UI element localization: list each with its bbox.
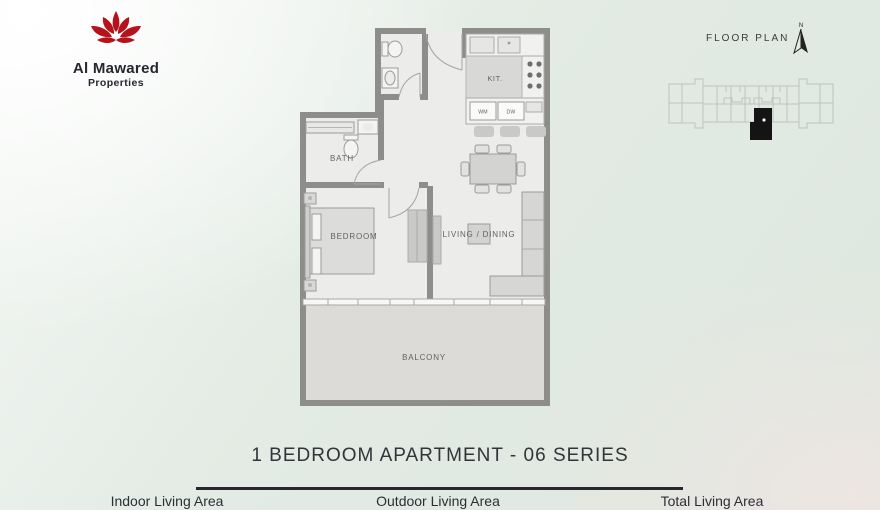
north-letter: N: [799, 23, 803, 29]
tv-console: [433, 216, 441, 264]
plan-title: 1 BEDROOM APARTMENT - 06 SERIES: [0, 445, 880, 467]
north-arrow-icon: N: [789, 20, 813, 61]
bedroom-label: BEDROOM: [331, 232, 378, 241]
kitchen-label: KIT.: [487, 74, 502, 83]
washing-machine-label: WM: [478, 110, 488, 116]
page: { "brand": { "name": "Al Mawared", "tagl…: [0, 0, 880, 510]
brand-tagline: Properties: [52, 77, 180, 89]
indoor-area-label: Indoor Living Area: [111, 493, 224, 509]
brand-logo: Al Mawared Properties: [52, 10, 180, 89]
bar-stools: [474, 126, 546, 137]
total-area-label: Total Living Area: [661, 493, 764, 509]
sofa-horizontal: [490, 276, 544, 296]
dining-table: [470, 154, 516, 184]
floor-plan-label: FLOOR PLAN: [706, 33, 789, 44]
lotus-icon: [79, 10, 153, 54]
highlighted-unit: [750, 108, 772, 140]
living-dining-label: LIVING / DINING: [443, 230, 516, 239]
brand-name: Al Mawared: [52, 60, 180, 77]
balcony-label: BALCONY: [402, 353, 446, 362]
outdoor-area-label: Outdoor Living Area: [376, 493, 500, 509]
building-key-plan: [666, 64, 838, 151]
kitchen: KIT. WM DW: [466, 34, 546, 137]
sofa-vertical: [522, 192, 544, 278]
dishwasher-label: DW: [506, 110, 515, 116]
divider: [196, 487, 683, 490]
floor-plan: KIT. WM DW BATH: [294, 28, 556, 415]
balcony-window-wall: [303, 299, 545, 305]
bath-label: BATH: [330, 154, 354, 163]
